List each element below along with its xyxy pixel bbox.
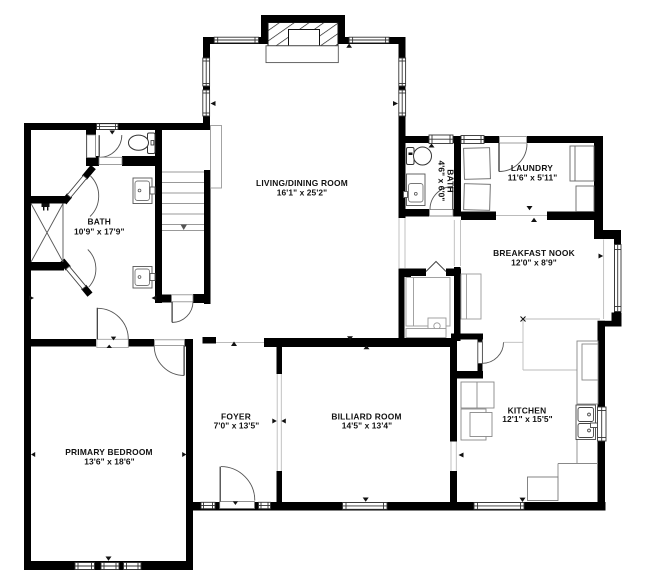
- svg-text:14'5" x 13'4": 14'5" x 13'4": [342, 421, 392, 431]
- svg-text:BATH: BATH: [88, 216, 112, 226]
- svg-text:4'6" x 6'0": 4'6" x 6'0": [437, 161, 447, 202]
- svg-text:12'0" x 8'9": 12'0" x 8'9": [511, 258, 557, 268]
- svg-text:7'0" x 13'5": 7'0" x 13'5": [214, 421, 260, 431]
- svg-text:16'1" x 25'2": 16'1" x 25'2": [277, 188, 327, 198]
- svg-text:13'6" x 18'6": 13'6" x 18'6": [84, 457, 134, 467]
- svg-text:12'1" x 15'5": 12'1" x 15'5": [502, 414, 552, 424]
- svg-text:11'6" x 5'11": 11'6" x 5'11": [508, 173, 558, 183]
- svg-text:BREAKFAST NOOK: BREAKFAST NOOK: [493, 248, 575, 258]
- svg-text:LAUNDRY: LAUNDRY: [511, 163, 553, 173]
- svg-text:LIVING/DINING ROOM: LIVING/DINING ROOM: [256, 178, 348, 188]
- svg-text:PRIMARY BEDROOM: PRIMARY BEDROOM: [65, 447, 153, 457]
- svg-text:10'9" x 17'9": 10'9" x 17'9": [74, 227, 124, 237]
